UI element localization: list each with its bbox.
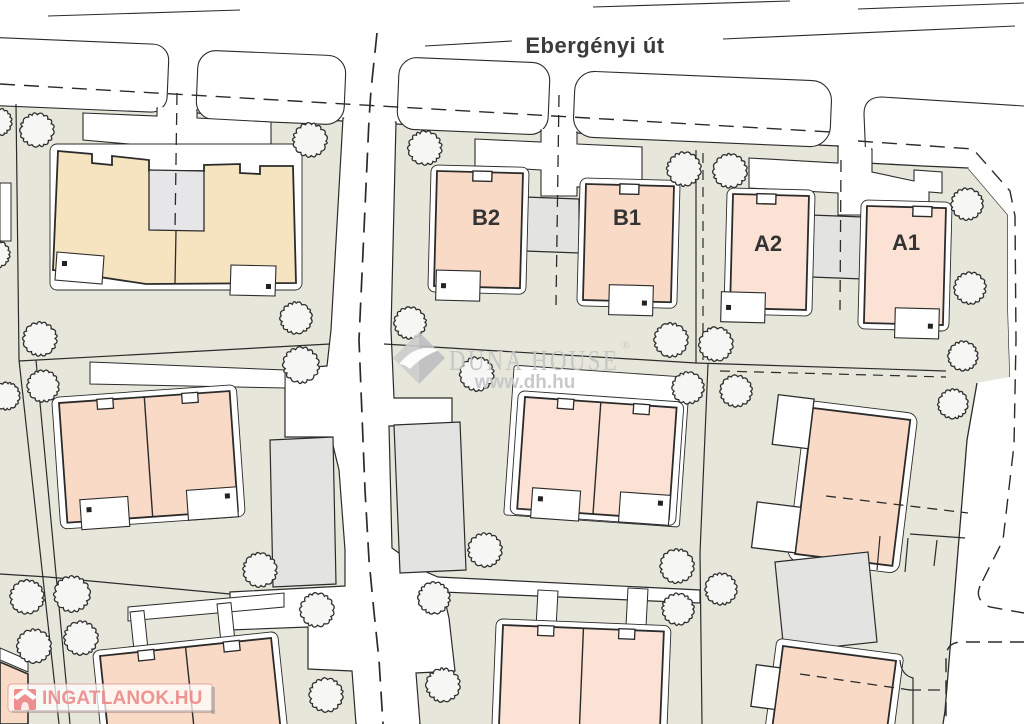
svg-text:B1: B1 (613, 205, 641, 230)
svg-text:A1: A1 (892, 230, 920, 255)
svg-text:Ebergényi út: Ebergényi út (525, 33, 664, 58)
svg-text:®: ® (621, 338, 630, 352)
svg-text:INGATLANOK.HU: INGATLANOK.HU (42, 688, 203, 709)
svg-text:www.dh.hu: www.dh.hu (474, 372, 576, 393)
svg-text:A2: A2 (754, 231, 782, 256)
svg-text:B2: B2 (472, 205, 500, 230)
